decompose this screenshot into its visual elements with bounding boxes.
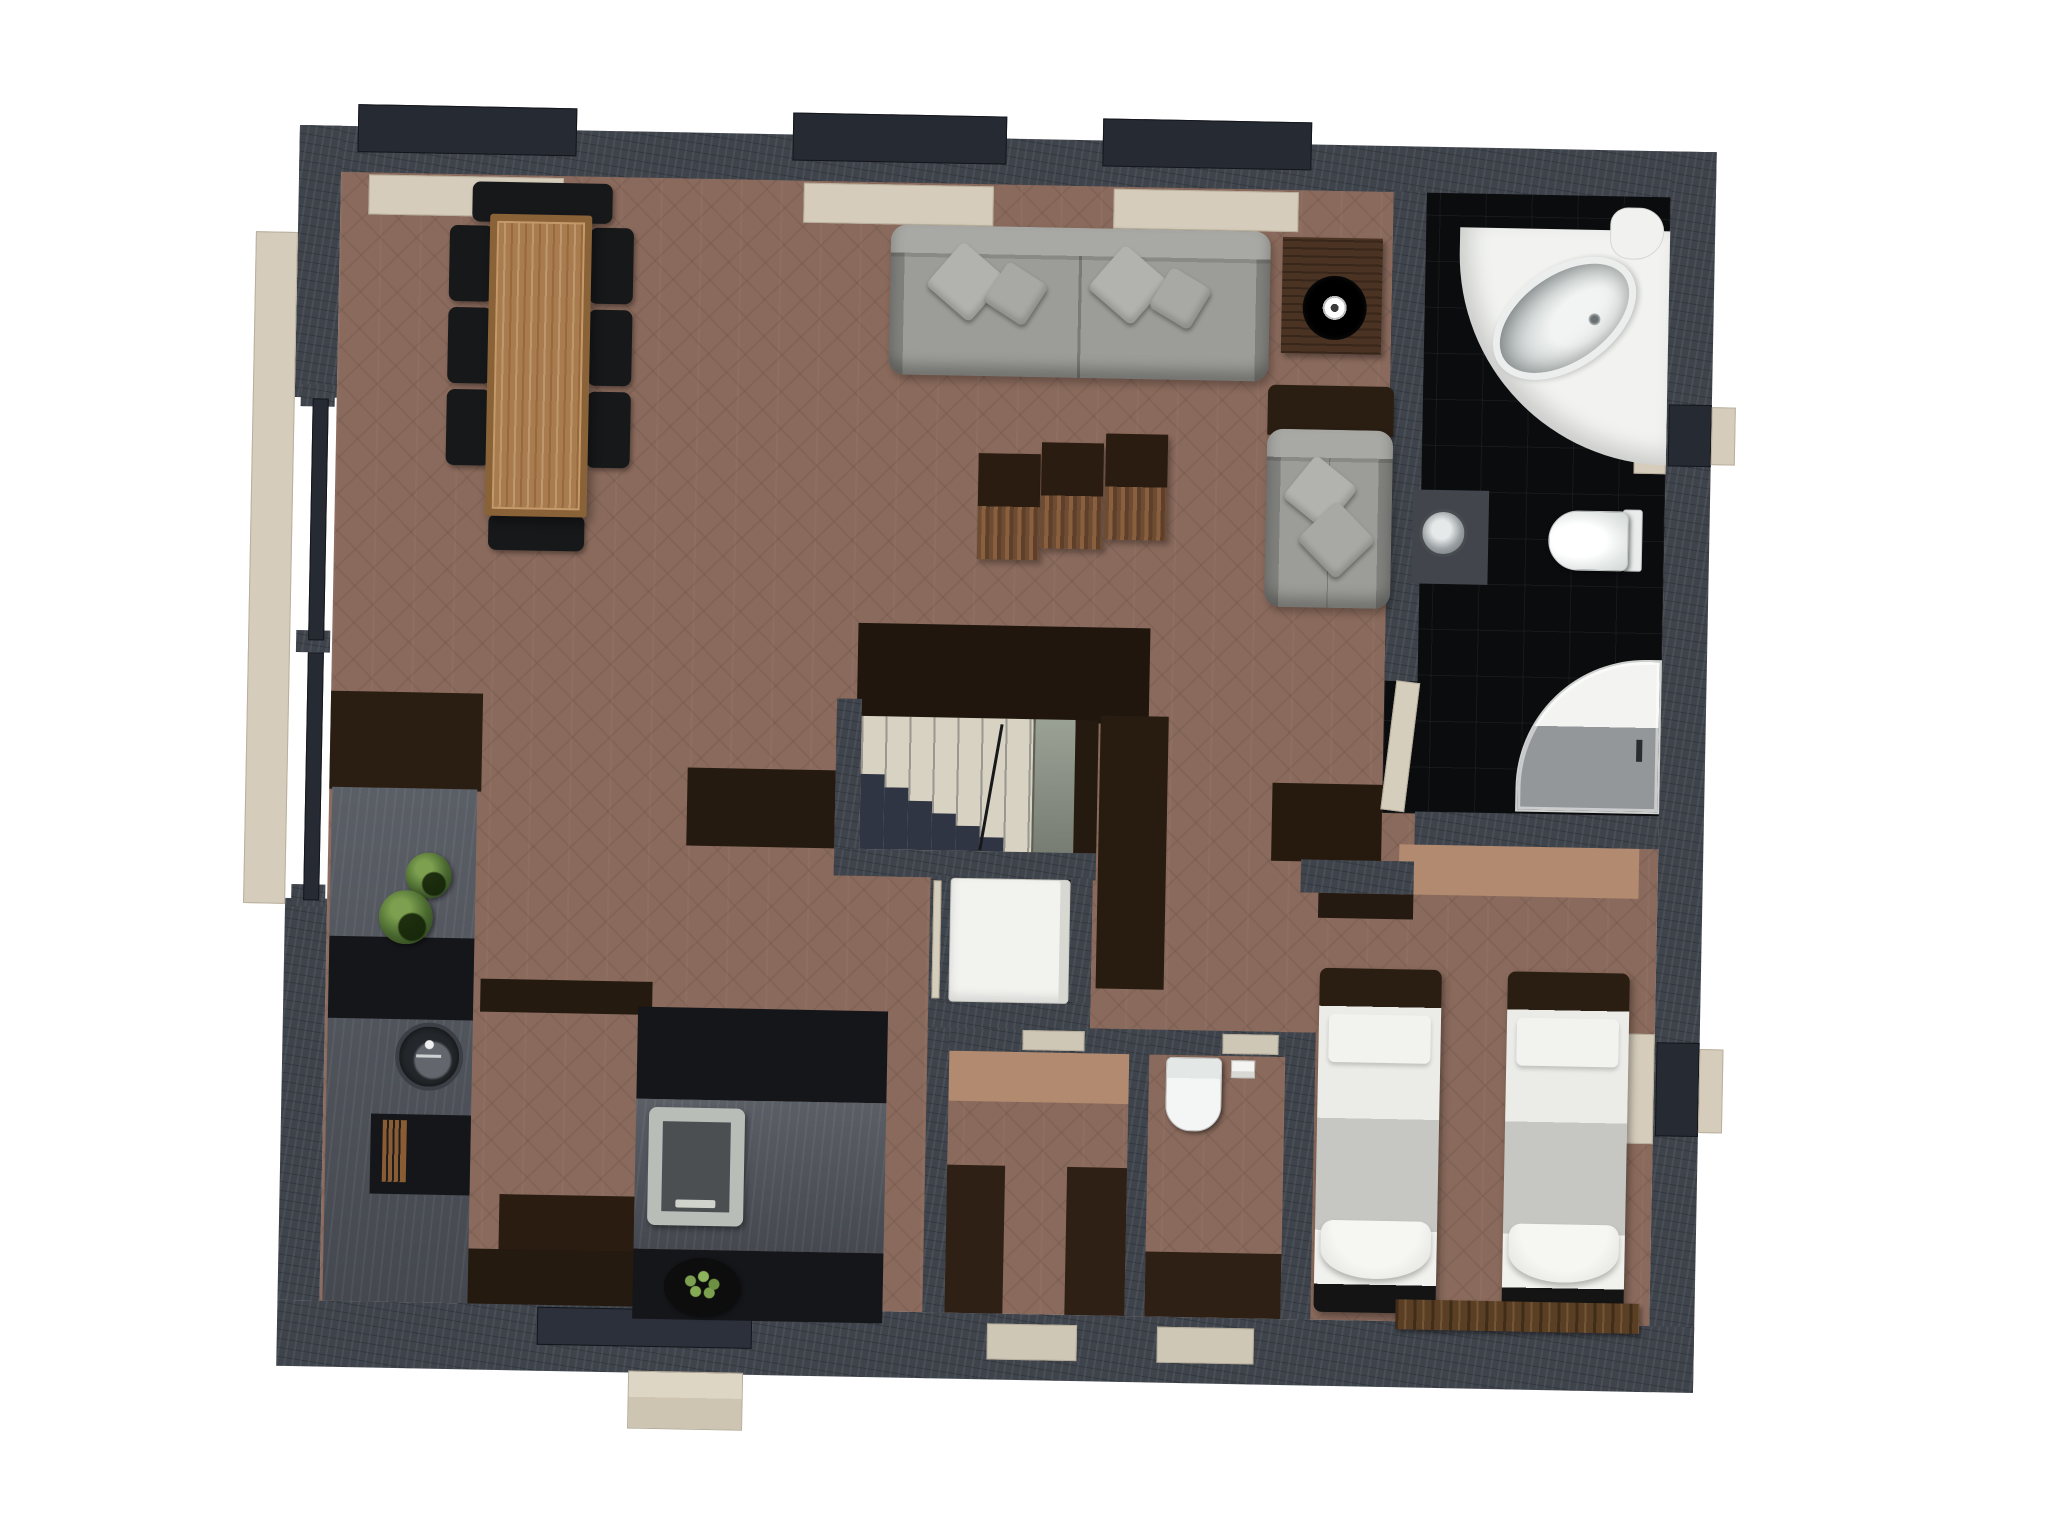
- bed-left: [1313, 968, 1442, 1314]
- hall-bottom-threshold: [986, 1323, 1077, 1361]
- washing-machine: [948, 878, 1070, 1004]
- toilet-paper-holder: [1231, 1060, 1255, 1078]
- bath-window-frame: [1668, 404, 1712, 467]
- hall-shadow-right: [1064, 1167, 1127, 1316]
- bedroom-window-frame: [1655, 1042, 1700, 1137]
- dining-chair-head-bottom: [488, 514, 585, 552]
- left-window-frame-1: [308, 398, 329, 640]
- tread-shadow-3: [907, 801, 932, 850]
- kitchen-counter-black-upper: [328, 936, 475, 1021]
- wall-bedroom-top: [1300, 859, 1414, 894]
- island-shadow-top: [480, 979, 653, 1015]
- hall-rug: [948, 1051, 1129, 1104]
- wall-bath-bottom: [1414, 812, 1659, 850]
- left-window-frame-2: [303, 652, 324, 900]
- bedroom-rug: [1398, 844, 1639, 899]
- floor-plan: [0, 0, 2048, 1536]
- left-window-sill: [243, 231, 298, 904]
- bed-foot-bench: [1395, 1299, 1640, 1334]
- bath-window-sill-outer: [1711, 407, 1736, 465]
- kitchen-counter-shadow: [329, 691, 483, 792]
- floor-plan-image: [0, 0, 2048, 1536]
- tread-shadow-2: [883, 787, 908, 849]
- tread-shadow-1: [859, 774, 884, 849]
- entry-floor-shadow: [457, 1248, 635, 1308]
- dining-table: [485, 214, 593, 518]
- wall-closet-bottom: [928, 1000, 1090, 1030]
- stairs-void: [1073, 720, 1099, 853]
- coffee-stool-3: [1104, 434, 1168, 541]
- stairs-glass-panel: [1031, 719, 1076, 853]
- left-wall-lower: [277, 898, 327, 1301]
- top-window-frame-1: [357, 104, 577, 156]
- bedroom-window-sill-outer: [1698, 1049, 1724, 1133]
- dining-chair-right-1: [589, 228, 634, 305]
- bed-right: [1501, 971, 1630, 1317]
- top-window-sill-3: [1113, 189, 1299, 233]
- dining-chair-left-2: [447, 307, 492, 384]
- entrance-porch: [627, 1371, 743, 1431]
- top-window-frame-2: [792, 112, 1007, 164]
- wc-floor-shadow: [1144, 1251, 1281, 1319]
- corridor-bedroom-shadow: [1271, 783, 1382, 863]
- coffee-stool-2: [1040, 442, 1104, 549]
- wall-stair-bottom: [834, 848, 1096, 880]
- hall-door-threshold: [1022, 1030, 1084, 1051]
- dining-chair-right-2: [587, 310, 632, 387]
- dining-chair-left-1: [449, 225, 494, 302]
- dining-chair-right-3: [585, 392, 630, 469]
- top-window-frame-3: [1102, 118, 1312, 170]
- coffee-stool-1: [977, 453, 1041, 560]
- wc-toilet: [1165, 1057, 1222, 1132]
- tread-shadow-5: [955, 826, 979, 851]
- corridor-stair-shadow: [1096, 715, 1169, 989]
- stair-landing-shadow: [857, 623, 1151, 725]
- hall-shadow-left: [944, 1165, 1005, 1314]
- stove-cooktop: [647, 1107, 745, 1227]
- bath-toilet: [1548, 510, 1629, 572]
- knife-block: [382, 1120, 407, 1182]
- dining-chair-left-3: [446, 389, 491, 466]
- island-black-top: [636, 1007, 888, 1104]
- wc-bottom-threshold: [1156, 1327, 1254, 1365]
- top-window-sill-2: [803, 183, 994, 227]
- stairs-side-shadow: [686, 768, 835, 849]
- tread-shadow-4: [931, 813, 956, 850]
- wall-wc-bedroom: [1280, 1032, 1316, 1320]
- wardrobe-shadow: [1318, 893, 1413, 920]
- left-wall-upper: [295, 125, 342, 398]
- wc-door-threshold: [1222, 1034, 1278, 1055]
